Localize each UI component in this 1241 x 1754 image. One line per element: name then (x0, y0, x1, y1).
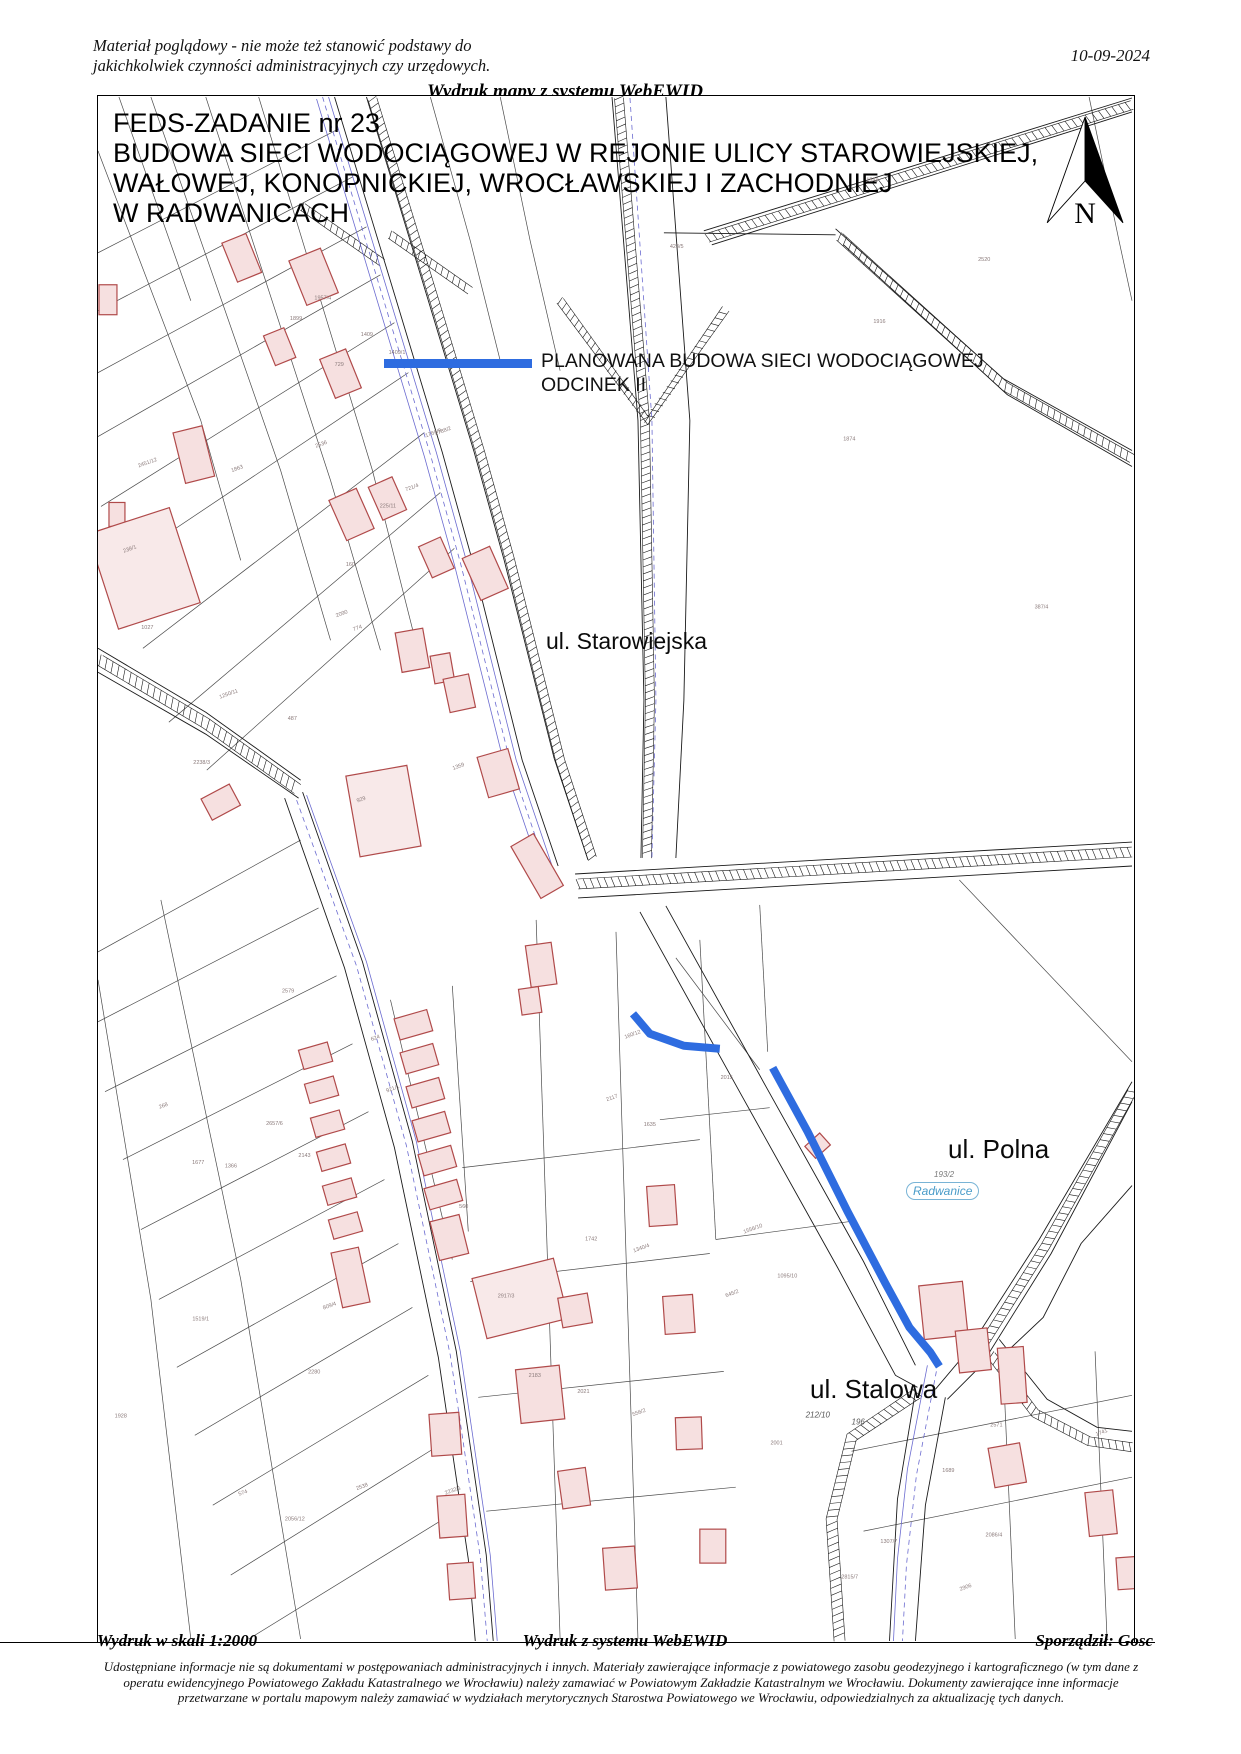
parcel-number-label: 212/10 (805, 1410, 831, 1419)
building-footprint (329, 488, 374, 540)
printed-map-page: { "page": { "disclaimer": "Materiał pogl… (0, 0, 1241, 1754)
building-footprint (1085, 1490, 1117, 1537)
tiny-parcel-number: 387/4 (1035, 605, 1049, 611)
legend-label-line-2: ODCINEK II (541, 373, 984, 397)
building-footprint (419, 537, 455, 578)
tiny-parcel-number: 556/2 (632, 1408, 647, 1418)
tiny-parcel-number: 1340/4 (633, 1243, 651, 1254)
planned-waterline (633, 1014, 720, 1049)
tiny-parcel-number: 2015 (721, 1075, 733, 1081)
tiny-parcel-number: 1769/8 (425, 428, 443, 439)
north-label: N (1074, 197, 1096, 230)
cadastral-map: 212/10196253618992238/3160238/1225/11140… (98, 96, 1134, 1642)
street-label-stalowa: ul. Stalowa (810, 1374, 937, 1405)
building-footprint (310, 1110, 344, 1137)
tiny-parcel-number: 1677 (192, 1160, 204, 1166)
building-footprint (368, 477, 406, 520)
building-footprint (518, 987, 541, 1015)
building-footprint (447, 1562, 475, 1600)
building-footprint (955, 1328, 991, 1373)
building-footprint (320, 349, 362, 398)
building-footprint (222, 233, 262, 282)
parcel-labels-layer: 212/10196 (805, 1410, 866, 1426)
tiny-parcel-number: 1928 (115, 1414, 127, 1420)
map-title-line-1: FEDS-ZADANIE nr 23 (113, 108, 1038, 138)
utility-lines-layer (297, 97, 937, 1641)
building-footprint (437, 1494, 468, 1538)
tiny-parcel-number: 2001 (770, 1440, 782, 1446)
buildings-layer (98, 233, 1134, 1599)
building-footprint (424, 1179, 463, 1209)
tiny-parcel-number: 2021 (577, 1389, 589, 1395)
tiny-parcel-number: 2536 (315, 440, 329, 450)
tiny-parcel-number: 2117 (606, 1094, 619, 1104)
tiny-parcel-number: 1409/1 (389, 350, 406, 356)
print-source: Wydruk z systemu WebEWID (523, 1631, 728, 1651)
building-footprint (558, 1293, 593, 1328)
north-arrow-icon: N (1047, 117, 1123, 230)
building-footprint (98, 508, 200, 630)
tiny-parcel-number: 1635 (644, 1122, 656, 1128)
tiny-parcel-number: 1741 (1095, 1428, 1109, 1438)
tiny-parcel-number: 1874 (843, 437, 855, 443)
tiny-parcel-number: 624 (370, 1034, 381, 1043)
tiny-parcel-number: 1863 (231, 464, 245, 474)
street-label-polna: ul. Polna (948, 1134, 1049, 1165)
building-footprint (395, 628, 429, 672)
tiny-parcel-number: 2579 (282, 988, 294, 994)
tiny-parcel-number: 160/12 (624, 1029, 642, 1040)
print-footer-row: Wydruk w skali 1:2000 Wydruk z systemu W… (97, 1631, 1153, 1653)
tiny-parcel-number: 2451/12 (137, 457, 158, 469)
building-footprint (316, 1144, 350, 1171)
tiny-parcel-number: 487 (288, 716, 297, 722)
building-footprint (603, 1546, 638, 1590)
tiny-parcel-number: 423/5 (670, 244, 684, 250)
tiny-parcel-number: 1095/10 (777, 1274, 797, 1280)
building-footprint (477, 749, 519, 798)
tiny-parcel-number: 574 (238, 1489, 249, 1498)
building-footprint (322, 1178, 356, 1205)
building-footprint (558, 1467, 591, 1508)
tiny-parcel-number: 225/11 (380, 504, 396, 510)
tiny-parcel-number: 2183 (529, 1373, 541, 1379)
building-footprint (429, 1412, 462, 1456)
legend-label-line-1: PLANOWANA BUDOWA SIECI WODOCIĄGOWEJ (541, 349, 984, 373)
tiny-parcel-number: 1409 (361, 332, 373, 338)
tiny-parcel-number: 721/4 (405, 483, 420, 493)
building-footprint (663, 1294, 696, 1334)
map-title-line-2: BUDOWA SIECI WODOCIĄGOWEJ W REJONIE ULIC… (113, 138, 1038, 168)
tiny-parcel-number: 2238/3 (193, 760, 210, 766)
map-frame: 212/10196253618992238/3160238/1225/11140… (97, 95, 1135, 1643)
building-footprint (400, 1044, 439, 1074)
building-footprint (997, 1347, 1027, 1405)
place-label-radwanice: Radwanice (906, 1182, 979, 1200)
tiny-parcel-number: 1027 (141, 625, 153, 631)
legal-disclaimer: Udostępniane informacje nie są dokumenta… (88, 1659, 1154, 1706)
legend-label: PLANOWANA BUDOWA SIECI WODOCIĄGOWEJ ODCI… (541, 349, 984, 397)
tiny-parcel-number: 2917/3 (498, 1293, 515, 1299)
building-footprint (99, 285, 117, 315)
building-footprint (988, 1443, 1026, 1488)
building-footprint (263, 328, 295, 366)
tiny-parcel-number: 2571 (990, 1423, 1002, 1429)
tiny-parcel-number: 2280 (308, 1369, 320, 1375)
planned-waterline-legend-sample (384, 359, 532, 368)
building-footprint (1116, 1556, 1134, 1589)
building-footprint (462, 546, 508, 600)
building-footprint (298, 1042, 332, 1069)
building-footprint (201, 784, 240, 820)
building-footprint (328, 1212, 362, 1239)
scale-note: Wydruk w skali 1:2000 (97, 1631, 257, 1651)
tiny-parcel-number: 268 (158, 1102, 169, 1111)
building-footprint (418, 1145, 457, 1175)
map-title-line-3: WAŁOWEJ, KONOPNICKIEJ, WROCŁAWSKIEJ I ZA… (113, 168, 1038, 198)
tiny-parcel-number: 560 (459, 1204, 468, 1210)
tiny-parcel-number: 1689 (942, 1468, 954, 1474)
tiny-parcel-number: 2056/12 (285, 1516, 305, 1522)
tiny-parcel-number: 1366 (225, 1164, 237, 1170)
building-footprint (675, 1417, 702, 1450)
tiny-parcel-number: 1307/7 (880, 1539, 897, 1545)
building-footprint (173, 426, 215, 484)
tiny-parcel-number: 2086/4 (986, 1532, 1003, 1538)
author-note: Sporządził: Gosc (1035, 1631, 1153, 1651)
tiny-parcel-number: 2815/7 (841, 1574, 858, 1580)
parcel-number-label: 196 (852, 1417, 866, 1426)
street-label-starowiejska: ul. Starowiejska (546, 628, 707, 655)
building-footprint (647, 1185, 678, 1227)
building-footprint (304, 1076, 338, 1103)
building-footprint (331, 1247, 370, 1308)
tiny-parcel-number: 729 (335, 362, 344, 368)
tiny-parcel-number: 645/2 (725, 1289, 740, 1299)
building-footprint (406, 1077, 445, 1107)
tiny-parcel-number: 1250/11 (219, 688, 239, 700)
parcel-boundaries-layer (98, 97, 1132, 1639)
parcel-number-193-2: 193/2 (934, 1170, 954, 1179)
building-footprint (443, 674, 475, 713)
tiny-parcel-number: 1742 (585, 1237, 597, 1243)
tiny-parcel-number: 2520 (978, 257, 990, 263)
tiny-parcel-number: 1519/1 (192, 1316, 209, 1322)
building-footprint (346, 765, 421, 856)
planned-waterline (773, 1068, 940, 1367)
tiny-parcel-number: 160 (346, 562, 355, 568)
building-footprint (472, 1258, 568, 1338)
tiny-parcel-number: 2906 (959, 1583, 973, 1593)
tiny-parcel-number: 921/1 (385, 1084, 400, 1094)
print-date: 10-09-2024 (1040, 46, 1150, 66)
tiny-parcel-number: 1957/4 (314, 296, 331, 302)
print-disclaimer: Materiał poglądowy - nie może też stanow… (93, 36, 490, 76)
roads-layer (98, 96, 1134, 1641)
tiny-parcel-number: 1916 (873, 319, 885, 325)
tiny-parcel-number: 2657/6 (266, 1121, 283, 1127)
building-footprint (511, 834, 563, 899)
tiny-parcel-number: 2090 (335, 609, 349, 619)
building-footprint (525, 942, 557, 987)
tiny-parcel-number: 2143 (298, 1153, 310, 1159)
building-footprint (700, 1529, 726, 1563)
map-title-block: FEDS-ZADANIE nr 23 BUDOWA SIECI WODOCIĄG… (113, 108, 1038, 228)
building-footprint (394, 1010, 433, 1040)
tiny-parcel-number: 1899 (290, 316, 302, 322)
tiny-parcel-number: 1359 (452, 762, 466, 772)
tiny-parcel-number: 809/4 (322, 1301, 337, 1311)
map-title-line-4: W RADWANICACH (113, 198, 1038, 228)
